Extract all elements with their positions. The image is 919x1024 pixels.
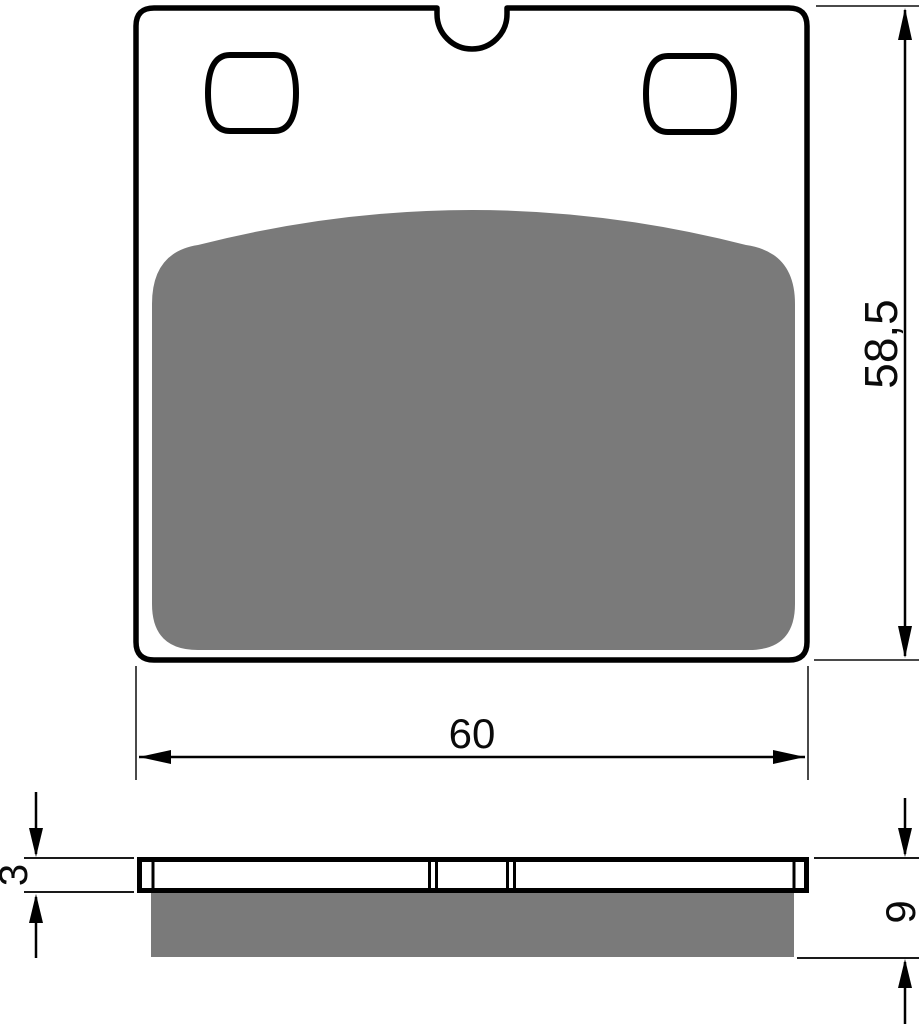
total-thickness-label: 9 [877,900,919,923]
arrowhead-down-icon [898,828,912,857]
mounting-hole-left-icon [208,55,296,131]
backplate-side [140,860,807,891]
arrowhead-up-icon [898,959,912,988]
front-view [136,8,807,660]
friction-material-front [152,210,795,650]
arrowhead-up-icon [29,894,43,923]
side-view [140,859,807,957]
height-dimension-label: 58,5 [855,299,907,389]
dimension-backplate-thickness: 3 [0,792,134,958]
brake-pad-technical-drawing: 58,5 60 [0,0,919,1024]
backplate-thickness-label: 3 [0,864,36,886]
friction-material-side [151,893,794,957]
dimension-height: 58,5 [814,6,919,660]
mounting-hole-right-icon [646,56,734,132]
arrowhead-up-icon [898,8,912,40]
width-dimension-label: 60 [449,710,496,757]
drawing-canvas: 58,5 60 [0,0,919,1024]
arrowhead-left-icon [139,750,171,764]
dimension-total-thickness: 9 [797,798,919,1024]
arrowhead-down-icon [29,828,43,857]
arrowhead-down-icon [898,626,912,658]
dimension-width: 60 [136,666,808,780]
arrowhead-right-icon [773,750,805,764]
